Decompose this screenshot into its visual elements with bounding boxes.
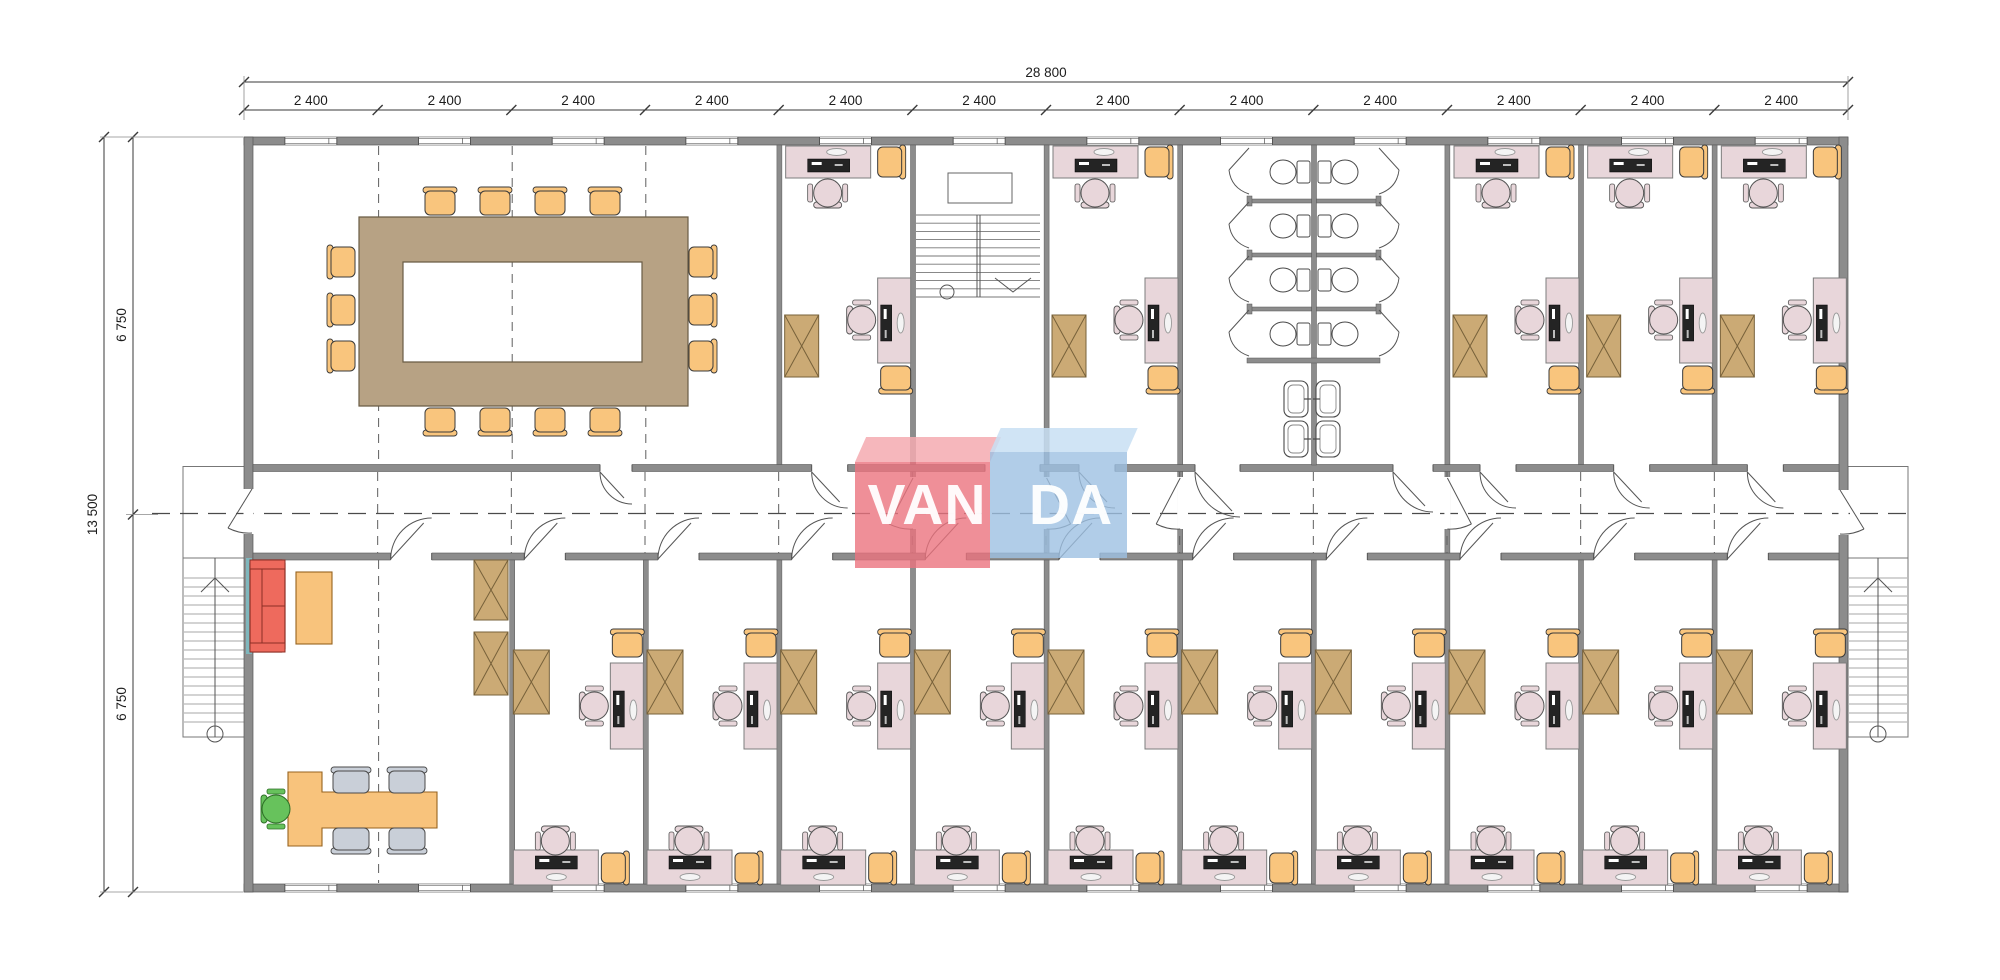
phone-icon (1165, 313, 1172, 333)
office-top-bay-12 (1720, 145, 1848, 394)
monitor-icon (1148, 305, 1159, 341)
cabinet-icon (513, 650, 549, 714)
phone-icon (1566, 313, 1573, 333)
stall-divider (1317, 307, 1378, 311)
door-opening (1460, 552, 1501, 561)
monitor-icon (1204, 856, 1246, 869)
cabinet-icon (1587, 315, 1621, 377)
guest-chair-icon (1136, 851, 1164, 885)
exterior-stairs-right (1848, 467, 1908, 743)
guest-chair-icon (327, 245, 355, 279)
monitor-icon (1738, 856, 1780, 869)
guest-chair-icon (588, 408, 622, 436)
office-bottom-bay-8 (1182, 629, 1313, 885)
door-swing-arc (1379, 170, 1399, 194)
guest-chair-icon (387, 828, 427, 854)
guest-chair-icon (1671, 851, 1699, 885)
guest-chair-icon (478, 408, 512, 436)
phone-icon (1094, 149, 1114, 156)
office-bottom-bay-7 (1048, 629, 1179, 885)
phone-icon (1749, 874, 1769, 881)
stall-divider (1250, 307, 1312, 311)
phone-icon (897, 700, 904, 720)
monitor-icon (1816, 305, 1827, 341)
washroom-center-wall (1312, 145, 1317, 465)
guest-chair-icon (423, 408, 457, 436)
partition-wall (911, 145, 916, 465)
door-leaf (1156, 478, 1180, 524)
monitor-icon (1282, 691, 1293, 727)
office-chair-icon (808, 179, 848, 208)
total-height-label: 13 500 (85, 494, 100, 535)
office-top-bay-5 (785, 145, 913, 394)
partition-wall (1044, 145, 1049, 465)
stairwell (916, 173, 1040, 299)
toilet-icon (1270, 268, 1310, 292)
cabinet-icon (785, 315, 819, 377)
cabinet-icon (1449, 650, 1485, 714)
office-chair-icon (1782, 300, 1811, 340)
door-leaf (1379, 310, 1399, 332)
door-opening (1193, 552, 1234, 561)
guest-chair-icon (1680, 629, 1714, 657)
guest-chair-icon (1546, 145, 1574, 179)
monitor-icon (881, 691, 892, 727)
door-swing-arc (1229, 278, 1249, 302)
stall-end-wall (1247, 358, 1380, 363)
phone-icon (1566, 700, 1573, 720)
phone-icon (1165, 700, 1172, 720)
bay-width-label: 2 400 (561, 93, 595, 108)
phone-icon (1699, 700, 1706, 720)
monitor-icon (1471, 856, 1513, 869)
phone-icon (947, 874, 967, 881)
phone-icon (680, 874, 700, 881)
phone-icon (1298, 700, 1305, 720)
guest-chair-icon (1813, 629, 1847, 657)
monitor-icon (936, 856, 978, 869)
monitor-icon (1070, 856, 1112, 869)
guest-chair-icon (1813, 145, 1841, 179)
cabinet-icon (1052, 315, 1086, 377)
guest-chair-icon (879, 366, 913, 394)
door-opening (1177, 477, 1183, 529)
phone-icon (1495, 149, 1515, 156)
cabinet-icon (1583, 650, 1619, 714)
guest-chair-icon (1814, 366, 1848, 394)
guest-chair-icon (1002, 851, 1030, 885)
corridor-wall-top (253, 465, 1839, 472)
phone-icon (1482, 874, 1502, 881)
monitor-icon (1337, 856, 1379, 869)
door-leaf (1379, 256, 1399, 278)
door-swing-arc (1379, 332, 1399, 356)
phone-icon (1432, 700, 1439, 720)
bay-width-label: 2 400 (695, 93, 729, 108)
phone-icon (1031, 700, 1038, 720)
office-bottom-bay-3 (513, 629, 644, 885)
guest-chair-icon (689, 293, 717, 327)
office-chair-icon (713, 686, 742, 726)
office-chair-icon (1610, 179, 1650, 208)
office-chair-icon (847, 300, 876, 340)
sink-icon (1284, 421, 1311, 457)
bay-width-label: 2 400 (829, 93, 863, 108)
guest-chair-icon (1412, 629, 1446, 657)
guest-chair-icon (610, 629, 644, 657)
door-opening (1747, 464, 1783, 473)
stair-landing (948, 173, 1012, 203)
guest-chair-icon (1537, 851, 1565, 885)
phone-icon (1699, 313, 1706, 333)
office-bottom-bay-4 (647, 629, 778, 885)
monitor-icon (1415, 691, 1426, 727)
cabinet-icon (914, 650, 950, 714)
office-chair-icon (1114, 300, 1143, 340)
office-chair-icon (1649, 300, 1678, 340)
monitor-icon (1683, 305, 1694, 341)
cabinet-icon (1453, 315, 1487, 377)
door-leaf (1614, 472, 1642, 502)
monitor-icon (1816, 691, 1827, 727)
phone-icon (1081, 874, 1101, 881)
conference-table (359, 217, 688, 406)
phone-icon (897, 313, 904, 333)
office-bottom-bay-11 (1583, 629, 1714, 885)
office-chair-icon (261, 789, 290, 829)
guest-chair-icon (1547, 366, 1581, 394)
guest-chair-icon (533, 187, 567, 215)
office-chair-icon (1782, 686, 1811, 726)
door-opening (1195, 464, 1240, 473)
door-leaf (1379, 148, 1399, 170)
guest-chair-icon (1011, 629, 1045, 657)
guest-chair-icon (1145, 629, 1179, 657)
guest-chair-icon (331, 767, 371, 793)
stall-divider (1250, 253, 1312, 257)
door-leaf (1229, 148, 1249, 170)
door-swing-arc (1229, 170, 1249, 194)
door-opening (658, 552, 699, 561)
office-top-bay-10 (1453, 145, 1581, 394)
monitor-icon (1476, 159, 1518, 172)
toilet-icon (1318, 160, 1358, 184)
door-swing-arc (1379, 224, 1399, 248)
door-leaf (1379, 202, 1399, 224)
reception-lobby (246, 558, 508, 854)
phone-icon (1348, 874, 1368, 881)
toilet-icon (1270, 214, 1310, 238)
office-chair-icon (1381, 686, 1410, 726)
door-swing-arc (1047, 524, 1071, 529)
cabinet-icon (474, 560, 508, 620)
guest-chair-icon (1804, 851, 1832, 885)
stall-divider (1317, 253, 1378, 257)
door-leaf (1195, 472, 1232, 511)
guest-chair-icon (1146, 366, 1180, 394)
door-opening (925, 552, 966, 561)
partition-wall (777, 145, 782, 465)
office-chair-icon (1649, 686, 1678, 726)
entrance-door-opening (1839, 490, 1849, 535)
door-opening (812, 464, 848, 473)
office-top-bay-11 (1587, 145, 1715, 394)
office-chair-icon (847, 686, 876, 726)
door-leaf (1447, 478, 1471, 524)
bay-width-label: 2 400 (294, 93, 328, 108)
monitor-icon (1743, 159, 1785, 172)
door-opening (1480, 464, 1516, 473)
door-opening (910, 477, 916, 529)
guest-chair-icon (1403, 851, 1431, 885)
guest-chair-icon (423, 187, 457, 215)
partition-wall (1044, 560, 1049, 884)
door-swing-arc (1379, 278, 1399, 302)
door-opening (600, 464, 632, 473)
door-opening (391, 552, 432, 561)
sofa-icon (250, 560, 285, 652)
monitor-icon (1014, 691, 1025, 727)
door-leaf (1229, 310, 1249, 332)
guest-chair-icon (1680, 145, 1708, 179)
cabinet-icon (474, 632, 508, 695)
office-bottom-bay-9 (1315, 629, 1446, 885)
monitor-icon (1610, 159, 1652, 172)
phone-icon (1833, 313, 1840, 333)
monitor-icon (613, 691, 624, 727)
partition-wall (911, 560, 916, 884)
door-leaf (1747, 472, 1775, 502)
cabinet-icon (1720, 315, 1754, 377)
office-chair-icon (1515, 686, 1544, 726)
total-width-label: 28 800 (1025, 65, 1066, 80)
door-leaf (1480, 472, 1508, 502)
upper-height-label: 6 750 (114, 308, 129, 342)
guest-chair-icon (1681, 366, 1715, 394)
phone-icon (1762, 149, 1782, 156)
partition-wall (777, 560, 782, 884)
entrance-landing (1848, 467, 1908, 559)
phone-icon (827, 149, 847, 156)
door-leaf (889, 478, 913, 524)
phone-icon (1616, 874, 1636, 881)
guest-chair-icon (387, 767, 427, 793)
cabinet-icon (647, 650, 683, 714)
door-opening (1393, 464, 1433, 473)
door-leaf (600, 472, 624, 498)
phone-icon (630, 700, 637, 720)
door-opening (1044, 477, 1050, 529)
exterior-wall-top (244, 137, 1848, 145)
partition-wall (643, 560, 648, 884)
washrooms (1229, 145, 1399, 465)
guest-chair-icon (735, 851, 763, 885)
guest-chair-icon (588, 187, 622, 215)
entrance-door-opening (244, 489, 254, 534)
cabinet-icon (1182, 650, 1218, 714)
office-bottom-bay-5 (781, 629, 912, 885)
lower-height-label: 6 750 (114, 687, 129, 721)
door-opening (792, 552, 833, 561)
guest-chair-icon (689, 339, 717, 373)
guest-chair-icon (327, 339, 355, 373)
door-swing-arc (1447, 524, 1471, 529)
bay-width-label: 2 400 (1764, 93, 1798, 108)
coffee-table (296, 572, 332, 644)
door-opening (1444, 477, 1450, 529)
door-leaf (1047, 478, 1071, 524)
guest-chair-icon (744, 629, 778, 657)
office-chair-icon (1248, 686, 1277, 726)
stair-direction-arrow (995, 278, 1031, 292)
office-bottom-bay-12 (1716, 629, 1847, 885)
office-chair-icon (1075, 179, 1115, 208)
office-chair-icon (579, 686, 608, 726)
guest-chair-icon (327, 293, 355, 327)
cabinet-icon (1315, 650, 1351, 714)
sink-icon (1313, 381, 1340, 417)
office-chair-icon (1515, 300, 1544, 340)
bay-width-label: 2 400 (1230, 93, 1264, 108)
phone-icon (1833, 700, 1840, 720)
office-top-bay-7 (1052, 145, 1180, 394)
monitor-icon (1683, 691, 1694, 727)
door-leaf (1393, 472, 1425, 506)
partition-wall (510, 560, 515, 884)
toilet-icon (1270, 322, 1310, 346)
door-leaf (1229, 256, 1249, 278)
monitor-icon (808, 159, 850, 172)
cabinet-icon (781, 650, 817, 714)
guest-chair-icon (1145, 145, 1173, 179)
monitor-icon (1549, 305, 1560, 341)
monitor-icon (1148, 691, 1159, 727)
sink-icon (1284, 381, 1311, 417)
phone-icon (546, 874, 566, 881)
door-opening (1727, 552, 1768, 561)
bay-width-label: 2 400 (1631, 93, 1665, 108)
guest-chair-icon (869, 851, 897, 885)
door-opening (1614, 464, 1650, 473)
cabinet-icon (1716, 650, 1752, 714)
monitor-icon (535, 856, 577, 869)
door-swing-arc (889, 524, 913, 529)
door-swing-arc (1156, 524, 1180, 529)
floor-plan-canvas: 28 8002 4002 4002 4002 4002 4002 4002 40… (0, 0, 2000, 980)
phone-icon (814, 874, 834, 881)
door-opening (524, 552, 565, 561)
office-bottom-bay-10 (1449, 629, 1580, 885)
guest-chair-icon (1270, 851, 1298, 885)
partition-wall (1445, 145, 1450, 465)
conference-room (327, 187, 717, 436)
monitor-icon (747, 691, 758, 727)
monitor-icon (1549, 691, 1560, 727)
stall-divider (1317, 199, 1378, 203)
phone-icon (764, 700, 771, 720)
toilet-icon (1270, 160, 1310, 184)
door-opening (1326, 552, 1367, 561)
door-opening (1594, 552, 1635, 561)
office-chair-icon (1114, 686, 1143, 726)
guest-chair-icon (689, 245, 717, 279)
door-opening (1079, 464, 1115, 473)
bay-width-label: 2 400 (428, 93, 462, 108)
monitor-icon (669, 856, 711, 869)
guest-chair-icon (331, 828, 371, 854)
guest-chair-icon (1279, 629, 1313, 657)
office-chair-icon (1476, 179, 1516, 208)
guest-chair-icon (478, 187, 512, 215)
monitor-icon (1605, 856, 1647, 869)
toilet-icon (1318, 268, 1358, 292)
phone-icon (1215, 874, 1235, 881)
monitor-icon (1075, 159, 1117, 172)
office-chair-icon (980, 686, 1009, 726)
office-chair-icon (1743, 179, 1783, 208)
bay-width-label: 2 400 (1497, 93, 1531, 108)
cabinet-icon (1048, 650, 1084, 714)
toilet-icon (1318, 322, 1358, 346)
guest-chair-icon (878, 629, 912, 657)
door-swing-arc (1229, 224, 1249, 248)
guest-chair-icon (878, 145, 906, 179)
bay-width-label: 2 400 (1363, 93, 1397, 108)
phone-icon (1629, 149, 1649, 156)
floor-plan-svg: 28 8002 4002 4002 4002 4002 4002 4002 40… (0, 0, 2000, 980)
office-bottom-bay-6 (914, 629, 1045, 885)
door-leaf (812, 472, 840, 502)
sink-icon (1313, 421, 1340, 457)
guest-chair-icon (601, 851, 629, 885)
bay-width-label: 2 400 (962, 93, 996, 108)
door-swing-arc (1229, 332, 1249, 356)
toilet-icon (1318, 214, 1358, 238)
door-leaf (1229, 202, 1249, 224)
stair-opening (985, 464, 1040, 473)
guest-chair-icon (533, 408, 567, 436)
guest-chair-icon (1546, 629, 1580, 657)
exterior-stairs-left (183, 467, 247, 743)
door-opening (1059, 552, 1100, 561)
door-leaf (1079, 472, 1107, 502)
monitor-icon (803, 856, 845, 869)
bay-width-label: 2 400 (1096, 93, 1130, 108)
stall-divider (1250, 199, 1312, 203)
monitor-icon (881, 305, 892, 341)
